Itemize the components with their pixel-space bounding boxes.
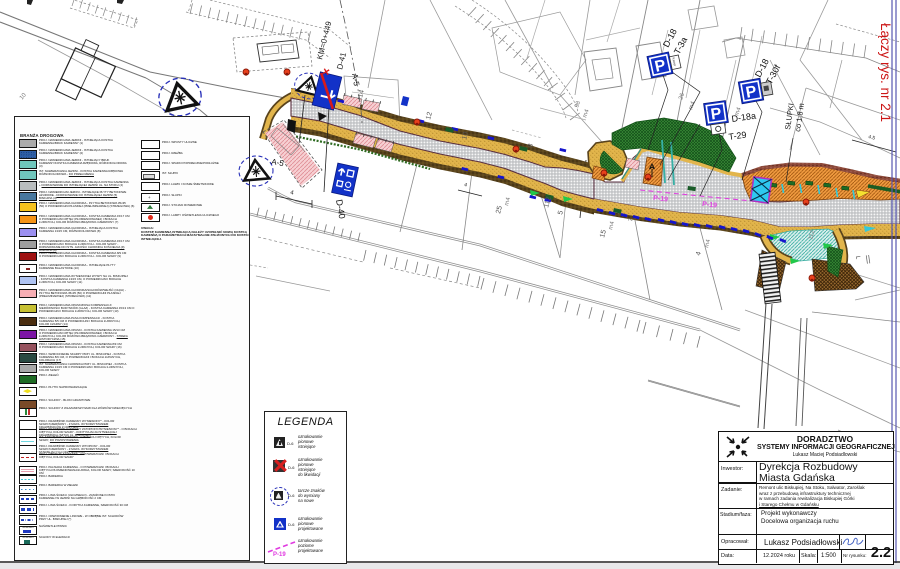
svg-text:Łączy rys. nr 2.1: Łączy rys. nr 2.1 bbox=[878, 23, 893, 122]
